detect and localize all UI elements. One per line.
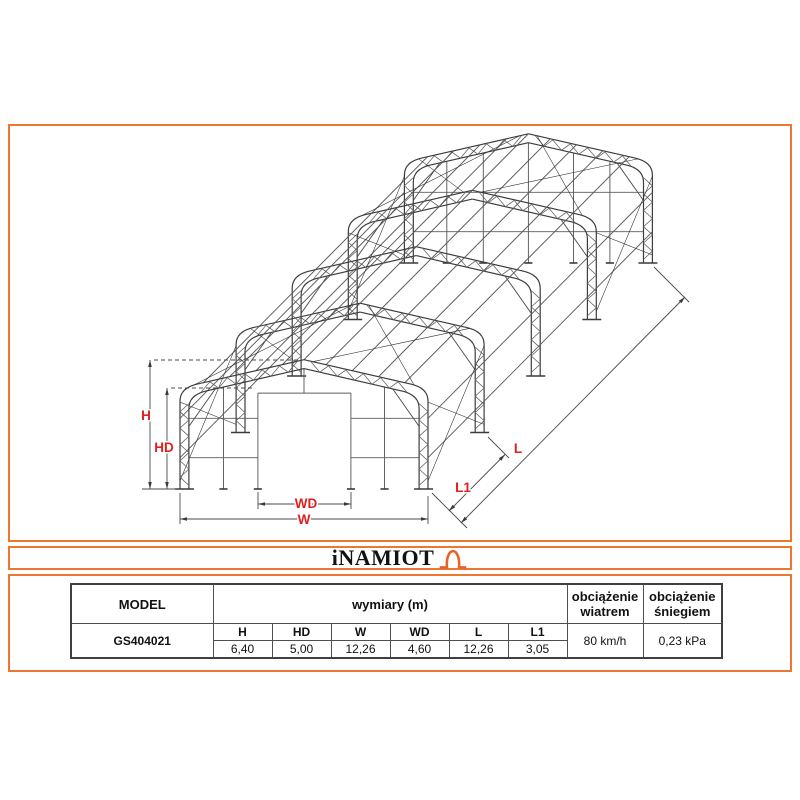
dim-val-wd: 4,60 <box>390 641 449 659</box>
snow-value: 0,23 kPa <box>643 624 722 659</box>
dim-col-h: H <box>213 624 272 641</box>
header-wind-load: obciążenie wiatrem <box>567 584 643 624</box>
dim-val-l1: 3,05 <box>508 641 567 659</box>
wind-value: 80 km/h <box>567 624 643 659</box>
header-snow-load: obciążenie śniegiem <box>643 584 722 624</box>
spec-table: MODEL wymiary (m) obciążenie wiatrem obc… <box>70 583 723 659</box>
tent-icon <box>438 546 468 570</box>
model-value: GS404021 <box>71 624 213 659</box>
header-dimensions: wymiary (m) <box>213 584 567 624</box>
dim-val-h: 6,40 <box>213 641 272 659</box>
dim-col-w: W <box>331 624 390 641</box>
dim-col-l1: L1 <box>508 624 567 641</box>
dim-val-l: 12,26 <box>449 641 508 659</box>
header-model: MODEL <box>71 584 213 624</box>
drawing-frame-box <box>8 124 792 542</box>
dim-col-wd: WD <box>390 624 449 641</box>
brand-text: iNAMIOT <box>332 547 435 569</box>
logo-bar: iNAMIOT <box>8 546 792 570</box>
dim-col-l: L <box>449 624 508 641</box>
dim-val-w: 12,26 <box>331 641 390 659</box>
dim-col-hd: HD <box>272 624 331 641</box>
page: HHDWWDL1L iNAMIOT MODEL wymiary (m) obci… <box>0 0 800 800</box>
spec-table-box: MODEL wymiary (m) obciążenie wiatrem obc… <box>8 574 792 672</box>
dim-val-hd: 5,00 <box>272 641 331 659</box>
